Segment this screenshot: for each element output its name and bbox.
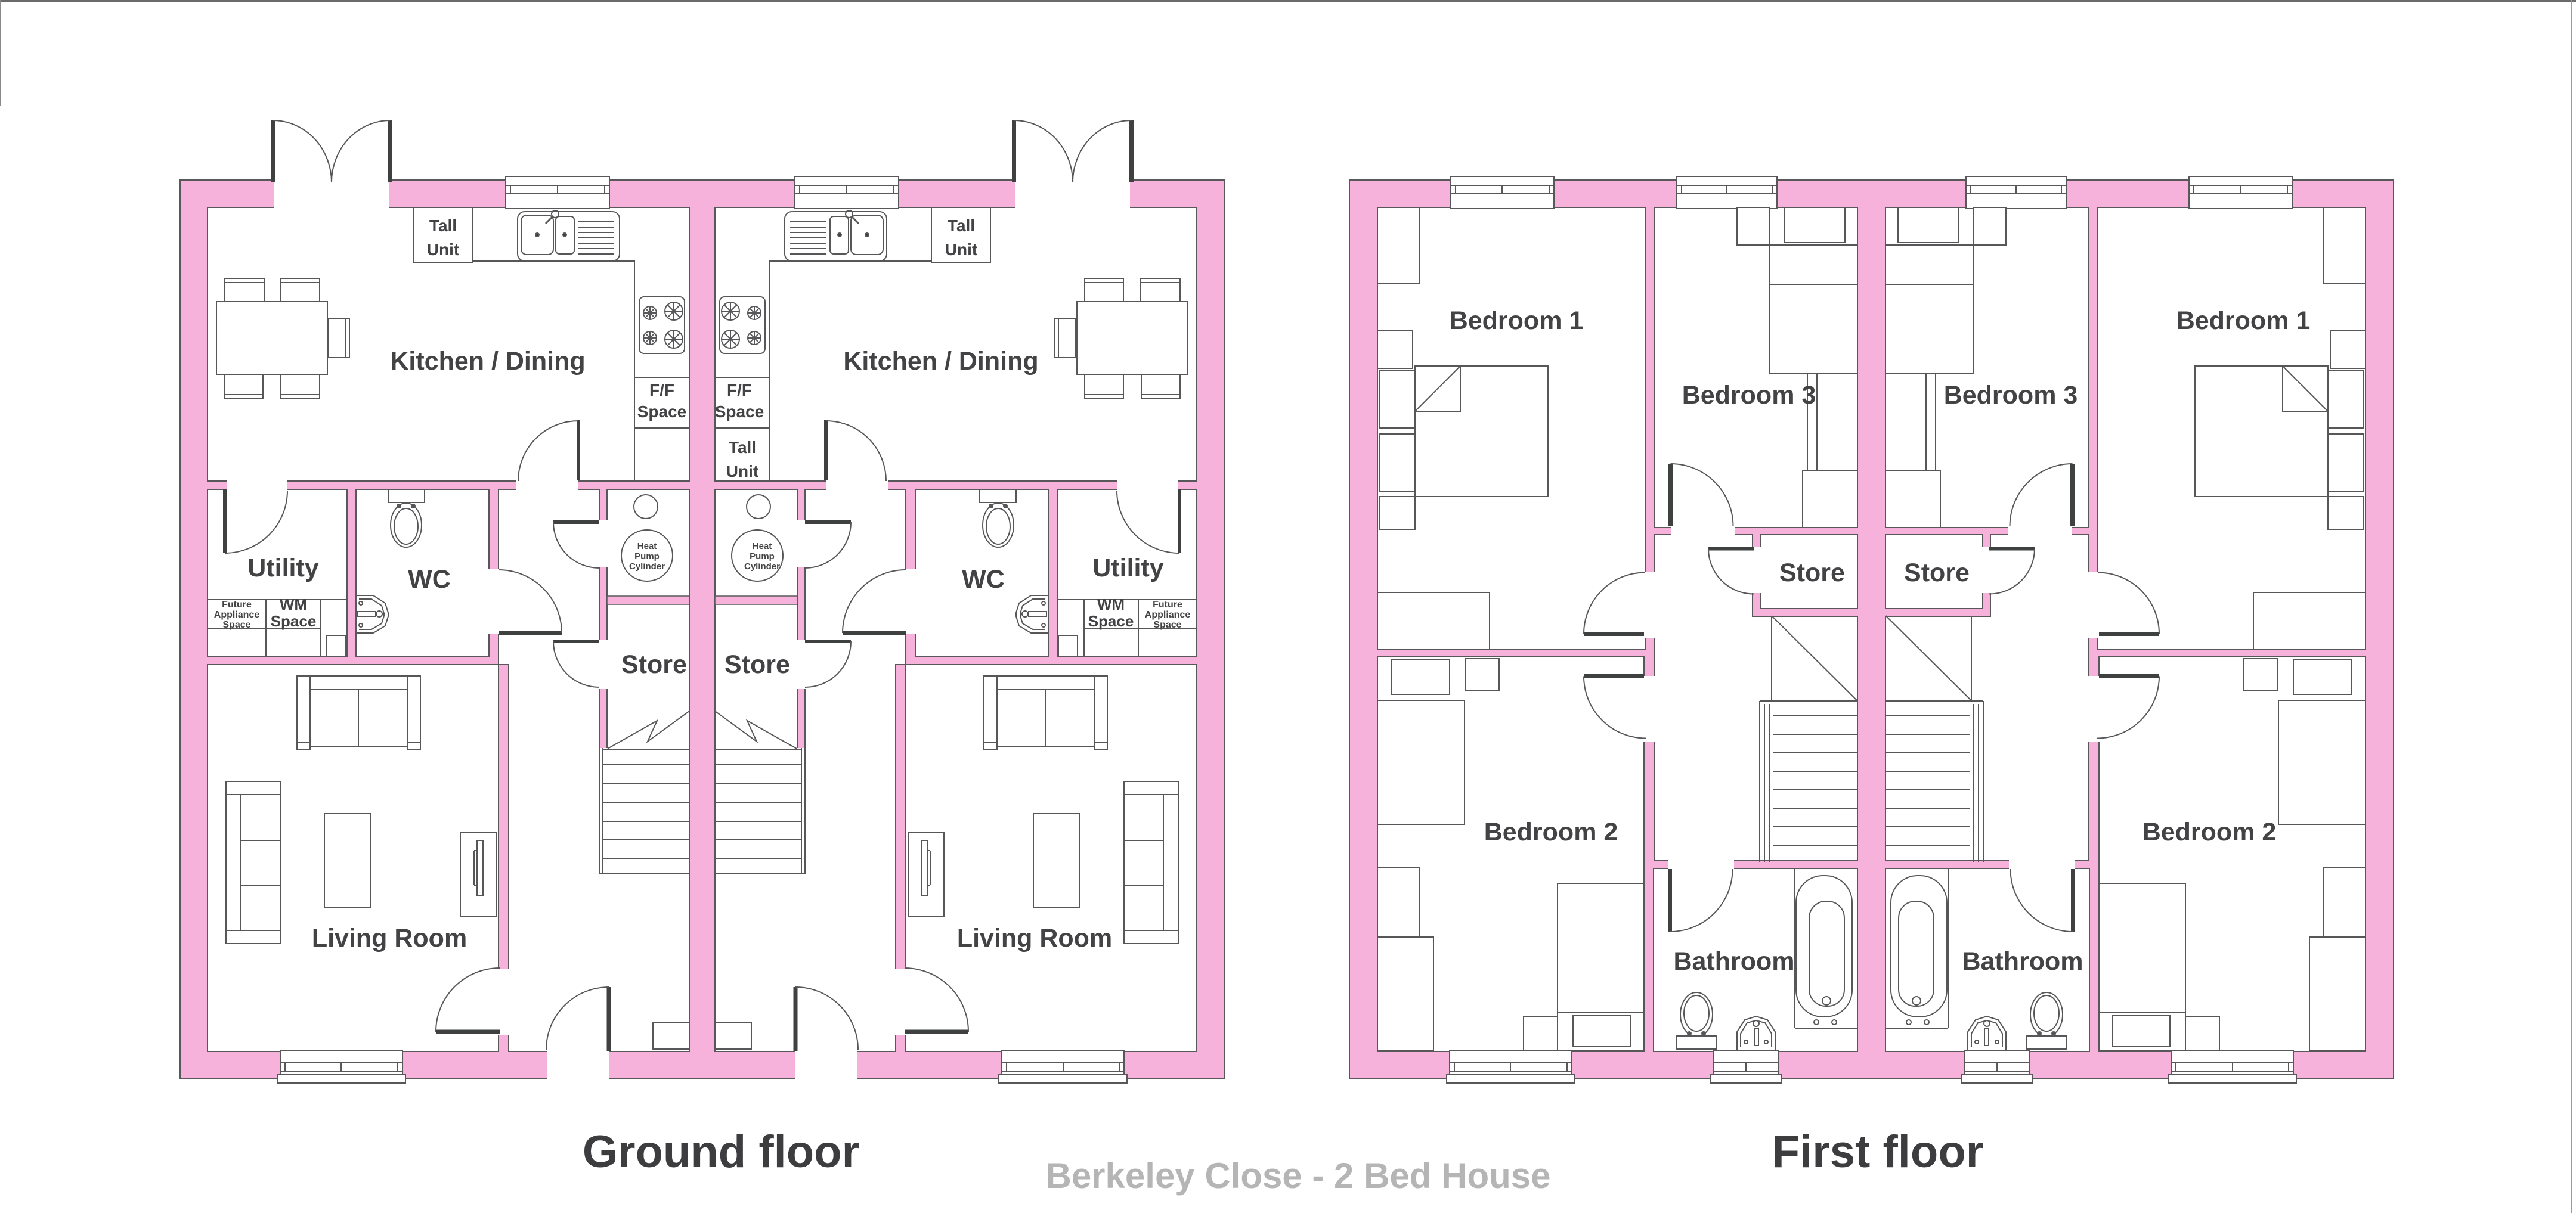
svg-text:Space: Space	[1153, 620, 1181, 630]
svg-text:Living Room: Living Room	[312, 924, 467, 953]
svg-text:Bedroom 2: Bedroom 2	[2142, 818, 2277, 846]
svg-text:Bedroom 3: Bedroom 3	[1944, 381, 2078, 409]
svg-text:WM: WM	[1097, 595, 1125, 613]
svg-text:Future: Future	[1153, 600, 1182, 610]
svg-text:Unit: Unit	[427, 240, 459, 259]
svg-text:Utility: Utility	[1092, 554, 1164, 582]
svg-text:Space: Space	[222, 620, 250, 630]
svg-text:Store: Store	[724, 650, 790, 679]
svg-text:Space: Space	[1088, 612, 1134, 630]
svg-text:Kitchen / Dining: Kitchen / Dining	[843, 347, 1038, 376]
svg-text:Tall: Tall	[729, 438, 756, 457]
svg-text:Space: Space	[271, 612, 317, 630]
svg-text:Store: Store	[1779, 559, 1845, 587]
svg-text:Space: Space	[637, 402, 687, 421]
svg-text:Bedroom 1: Bedroom 1	[2176, 306, 2311, 335]
svg-text:Bathroom: Bathroom	[1673, 947, 1794, 976]
svg-text:WC: WC	[408, 565, 451, 594]
svg-text:Appliance: Appliance	[1145, 610, 1191, 620]
svg-text:Kitchen / Dining: Kitchen / Dining	[390, 347, 585, 376]
svg-text:Pump: Pump	[634, 551, 660, 561]
svg-text:Future: Future	[222, 600, 252, 610]
svg-text:Bathroom: Bathroom	[1962, 947, 2083, 976]
svg-text:Living Room: Living Room	[957, 924, 1112, 953]
svg-text:F/F: F/F	[727, 381, 752, 399]
svg-text:Tall: Tall	[429, 216, 457, 235]
svg-text:Bedroom 2: Bedroom 2	[1484, 818, 1618, 846]
svg-text:Appliance: Appliance	[214, 610, 260, 620]
svg-text:WM: WM	[280, 595, 307, 613]
svg-text:Cylinder: Cylinder	[744, 561, 780, 572]
svg-text:Unit: Unit	[945, 240, 977, 259]
svg-text:Unit: Unit	[726, 462, 758, 480]
svg-text:Cylinder: Cylinder	[629, 561, 665, 572]
svg-text:Bedroom 3: Bedroom 3	[1682, 381, 1816, 409]
svg-text:F/F: F/F	[649, 381, 674, 399]
svg-text:First floor: First floor	[1772, 1127, 1984, 1177]
svg-text:Heat: Heat	[753, 541, 772, 551]
svg-text:Store: Store	[621, 650, 687, 679]
svg-text:WC: WC	[962, 565, 1005, 594]
svg-text:Store: Store	[1904, 559, 1970, 587]
svg-text:Tall: Tall	[948, 216, 975, 235]
svg-text:Bedroom 1: Bedroom 1	[1450, 306, 1584, 335]
svg-text:Space: Space	[715, 402, 764, 421]
svg-text:Berkeley Close - 2 Bed House: Berkeley Close - 2 Bed House	[1045, 1156, 1550, 1196]
svg-text:Utility: Utility	[247, 554, 319, 582]
svg-text:Pump: Pump	[750, 551, 775, 561]
svg-text:Heat: Heat	[637, 541, 657, 551]
svg-text:Ground floor: Ground floor	[583, 1127, 859, 1177]
